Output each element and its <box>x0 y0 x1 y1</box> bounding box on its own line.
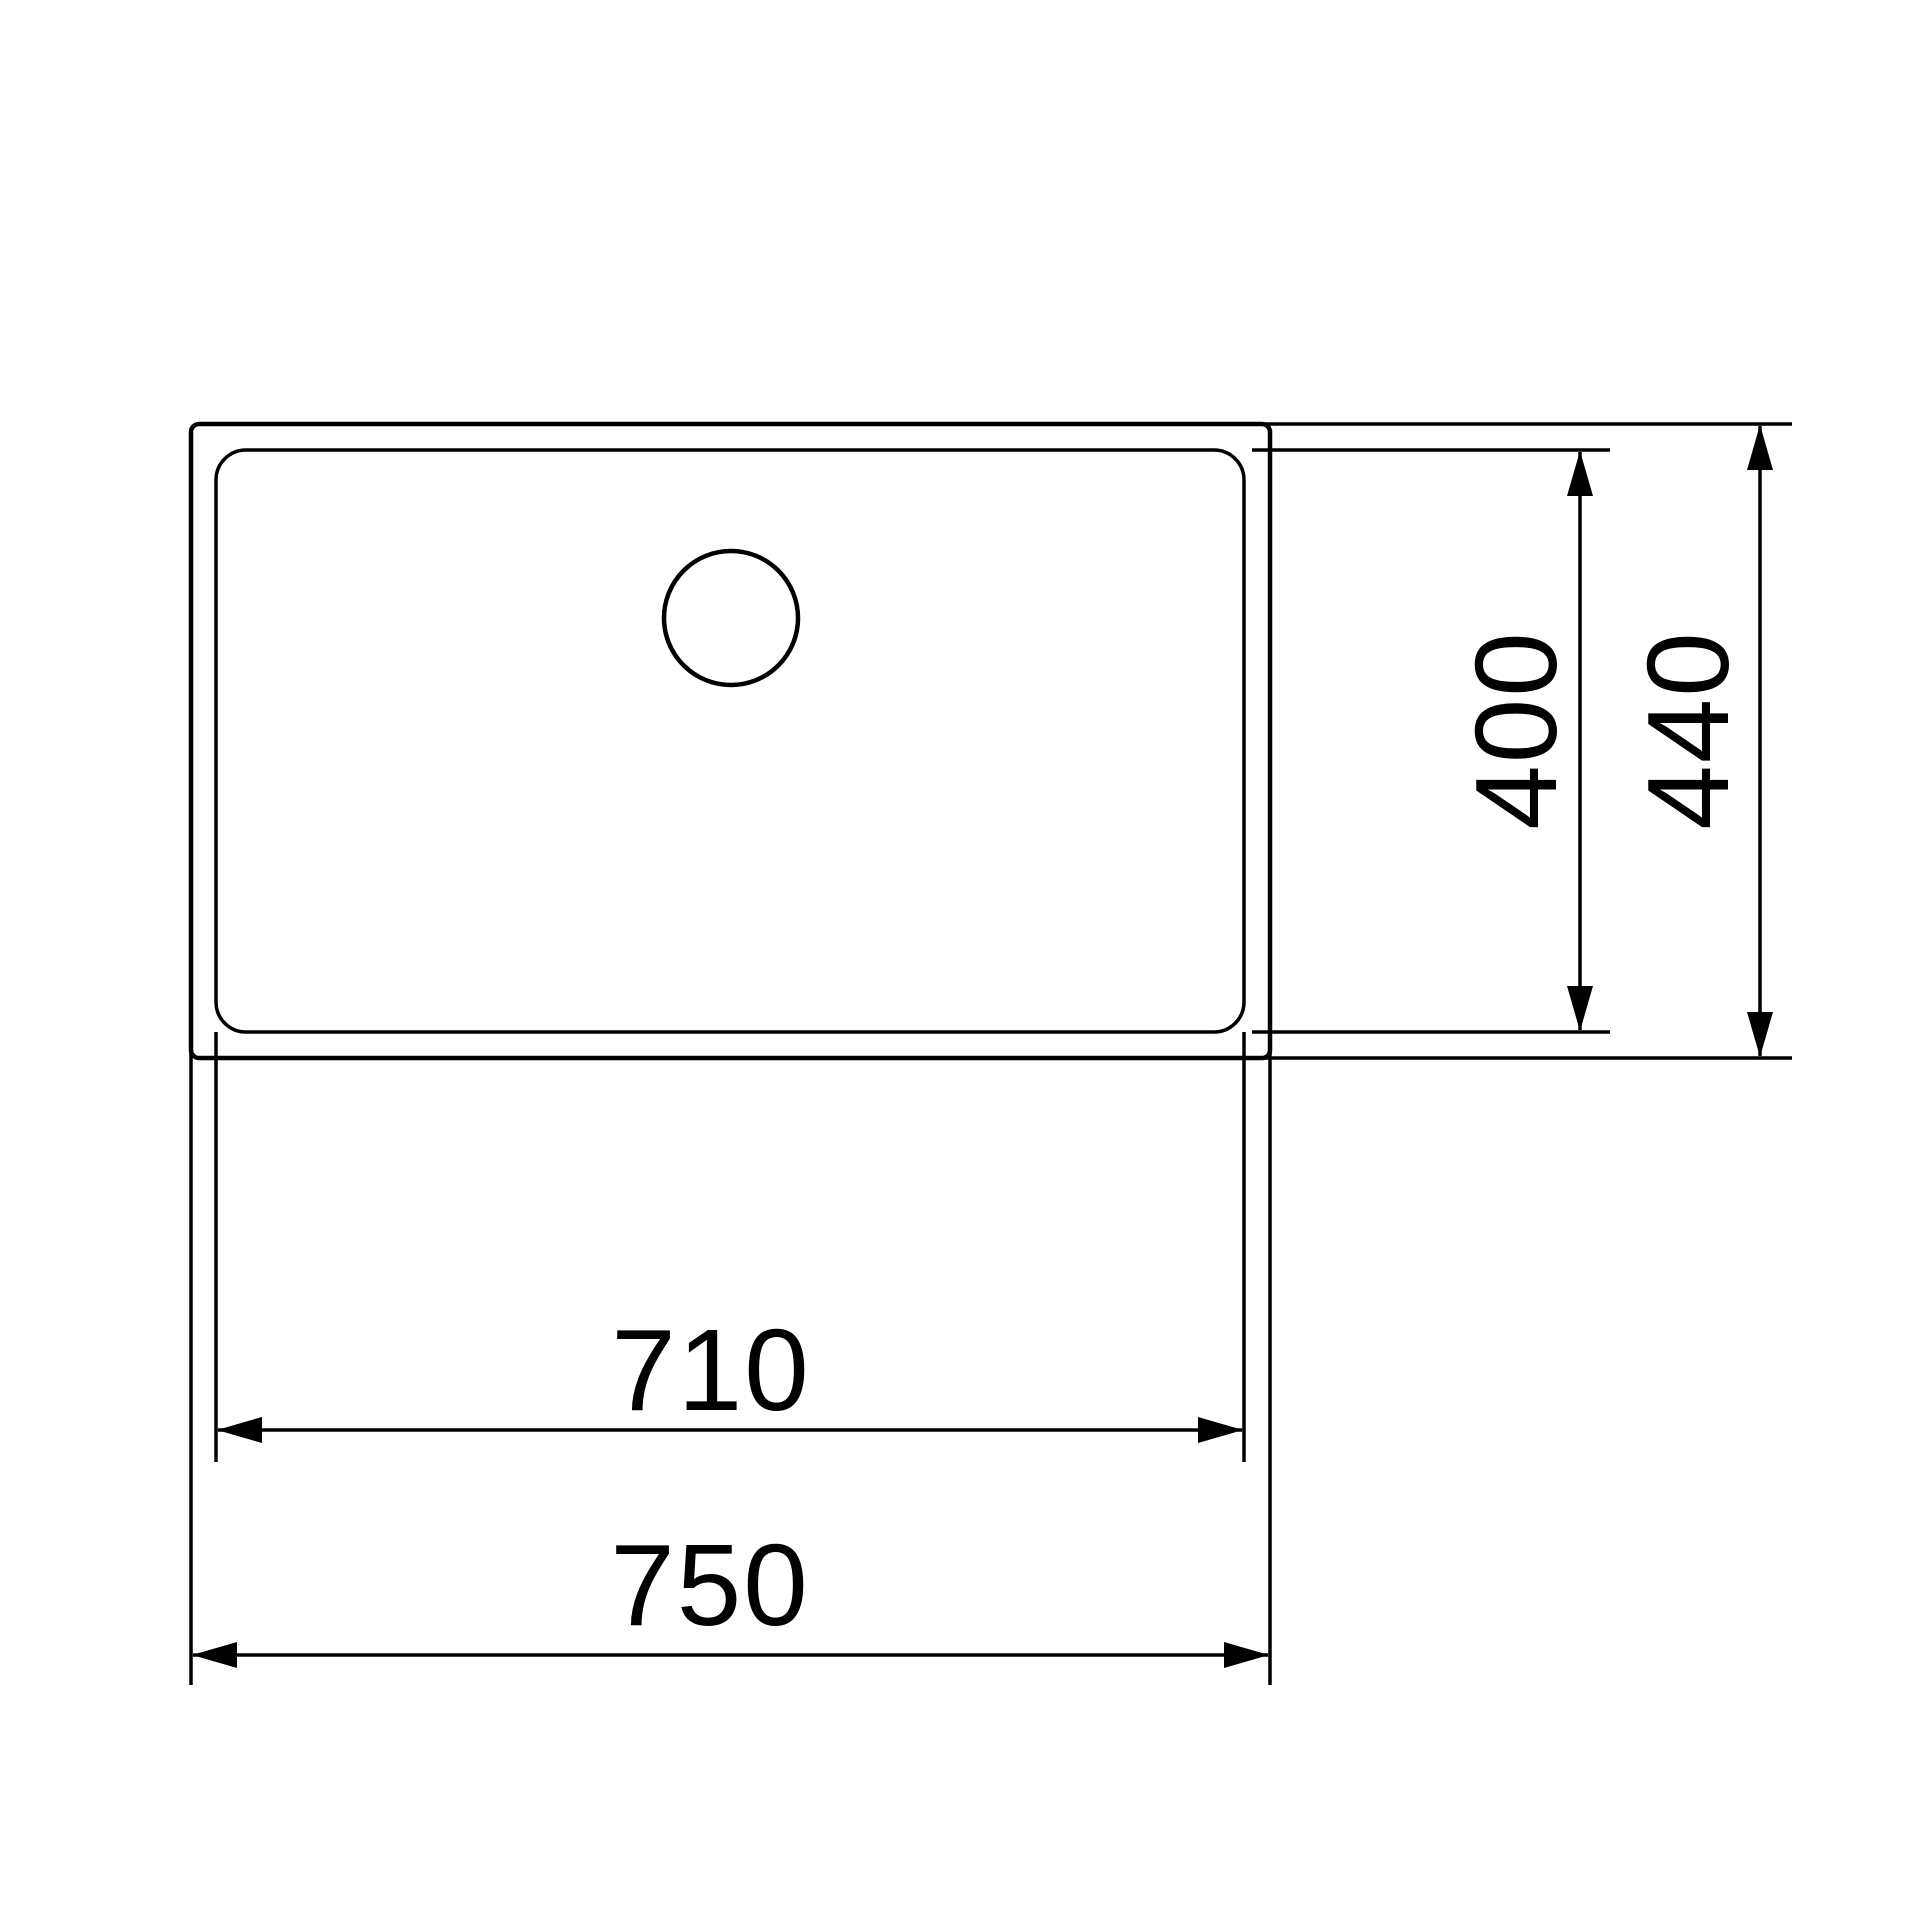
page-background <box>0 0 1920 1920</box>
dimension-label-outer-width: 750 <box>610 1520 810 1650</box>
sink-dimension-drawing: 710 750 400 440 <box>0 0 1920 1920</box>
dimension-label-inner-width: 710 <box>611 1305 811 1435</box>
dimension-label-outer-depth: 440 <box>1623 630 1753 830</box>
drawing-canvas: 710 750 400 440 <box>0 0 1920 1920</box>
dimension-label-inner-depth: 400 <box>1451 630 1581 830</box>
